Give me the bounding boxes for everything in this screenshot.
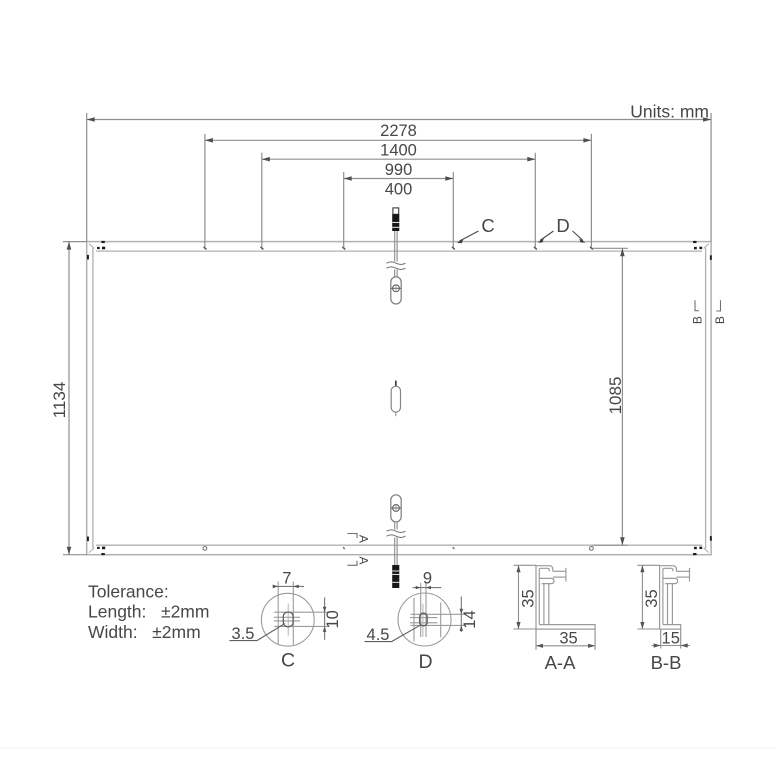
svg-text:B-B: B-B	[651, 652, 682, 673]
svg-text:35: 35	[519, 589, 537, 607]
svg-text:1085: 1085	[606, 377, 625, 415]
svg-text:990: 990	[385, 161, 413, 179]
svg-text:10: 10	[324, 610, 342, 628]
svg-text:A: A	[357, 535, 371, 543]
svg-text:2278: 2278	[380, 122, 417, 140]
svg-text:A: A	[357, 556, 371, 564]
svg-text:9: 9	[423, 570, 432, 588]
svg-text:15: 15	[662, 629, 680, 647]
svg-text:14: 14	[461, 610, 479, 628]
svg-text:400: 400	[385, 181, 413, 199]
svg-text:4.5: 4.5	[367, 626, 390, 644]
svg-text:B: B	[713, 316, 727, 324]
svg-text:Width: ±2mm: Width: ±2mm	[88, 622, 201, 642]
svg-text:C: C	[481, 215, 494, 236]
svg-text:Length: ±2mm: Length: ±2mm	[88, 601, 209, 621]
svg-text:1400: 1400	[380, 142, 417, 160]
svg-text:Units: mm: Units: mm	[630, 102, 709, 122]
svg-text:35: 35	[559, 630, 577, 648]
svg-text:D: D	[418, 651, 432, 673]
svg-text:B: B	[691, 316, 705, 324]
svg-text:1134: 1134	[50, 382, 69, 419]
svg-text:A-A: A-A	[545, 652, 577, 673]
svg-text:Tolerance:: Tolerance:	[88, 582, 169, 602]
svg-text:35: 35	[643, 589, 661, 607]
svg-text:D: D	[556, 215, 569, 236]
svg-text:7: 7	[282, 570, 291, 588]
svg-text:C: C	[281, 650, 295, 672]
svg-text:3.5: 3.5	[232, 625, 255, 643]
